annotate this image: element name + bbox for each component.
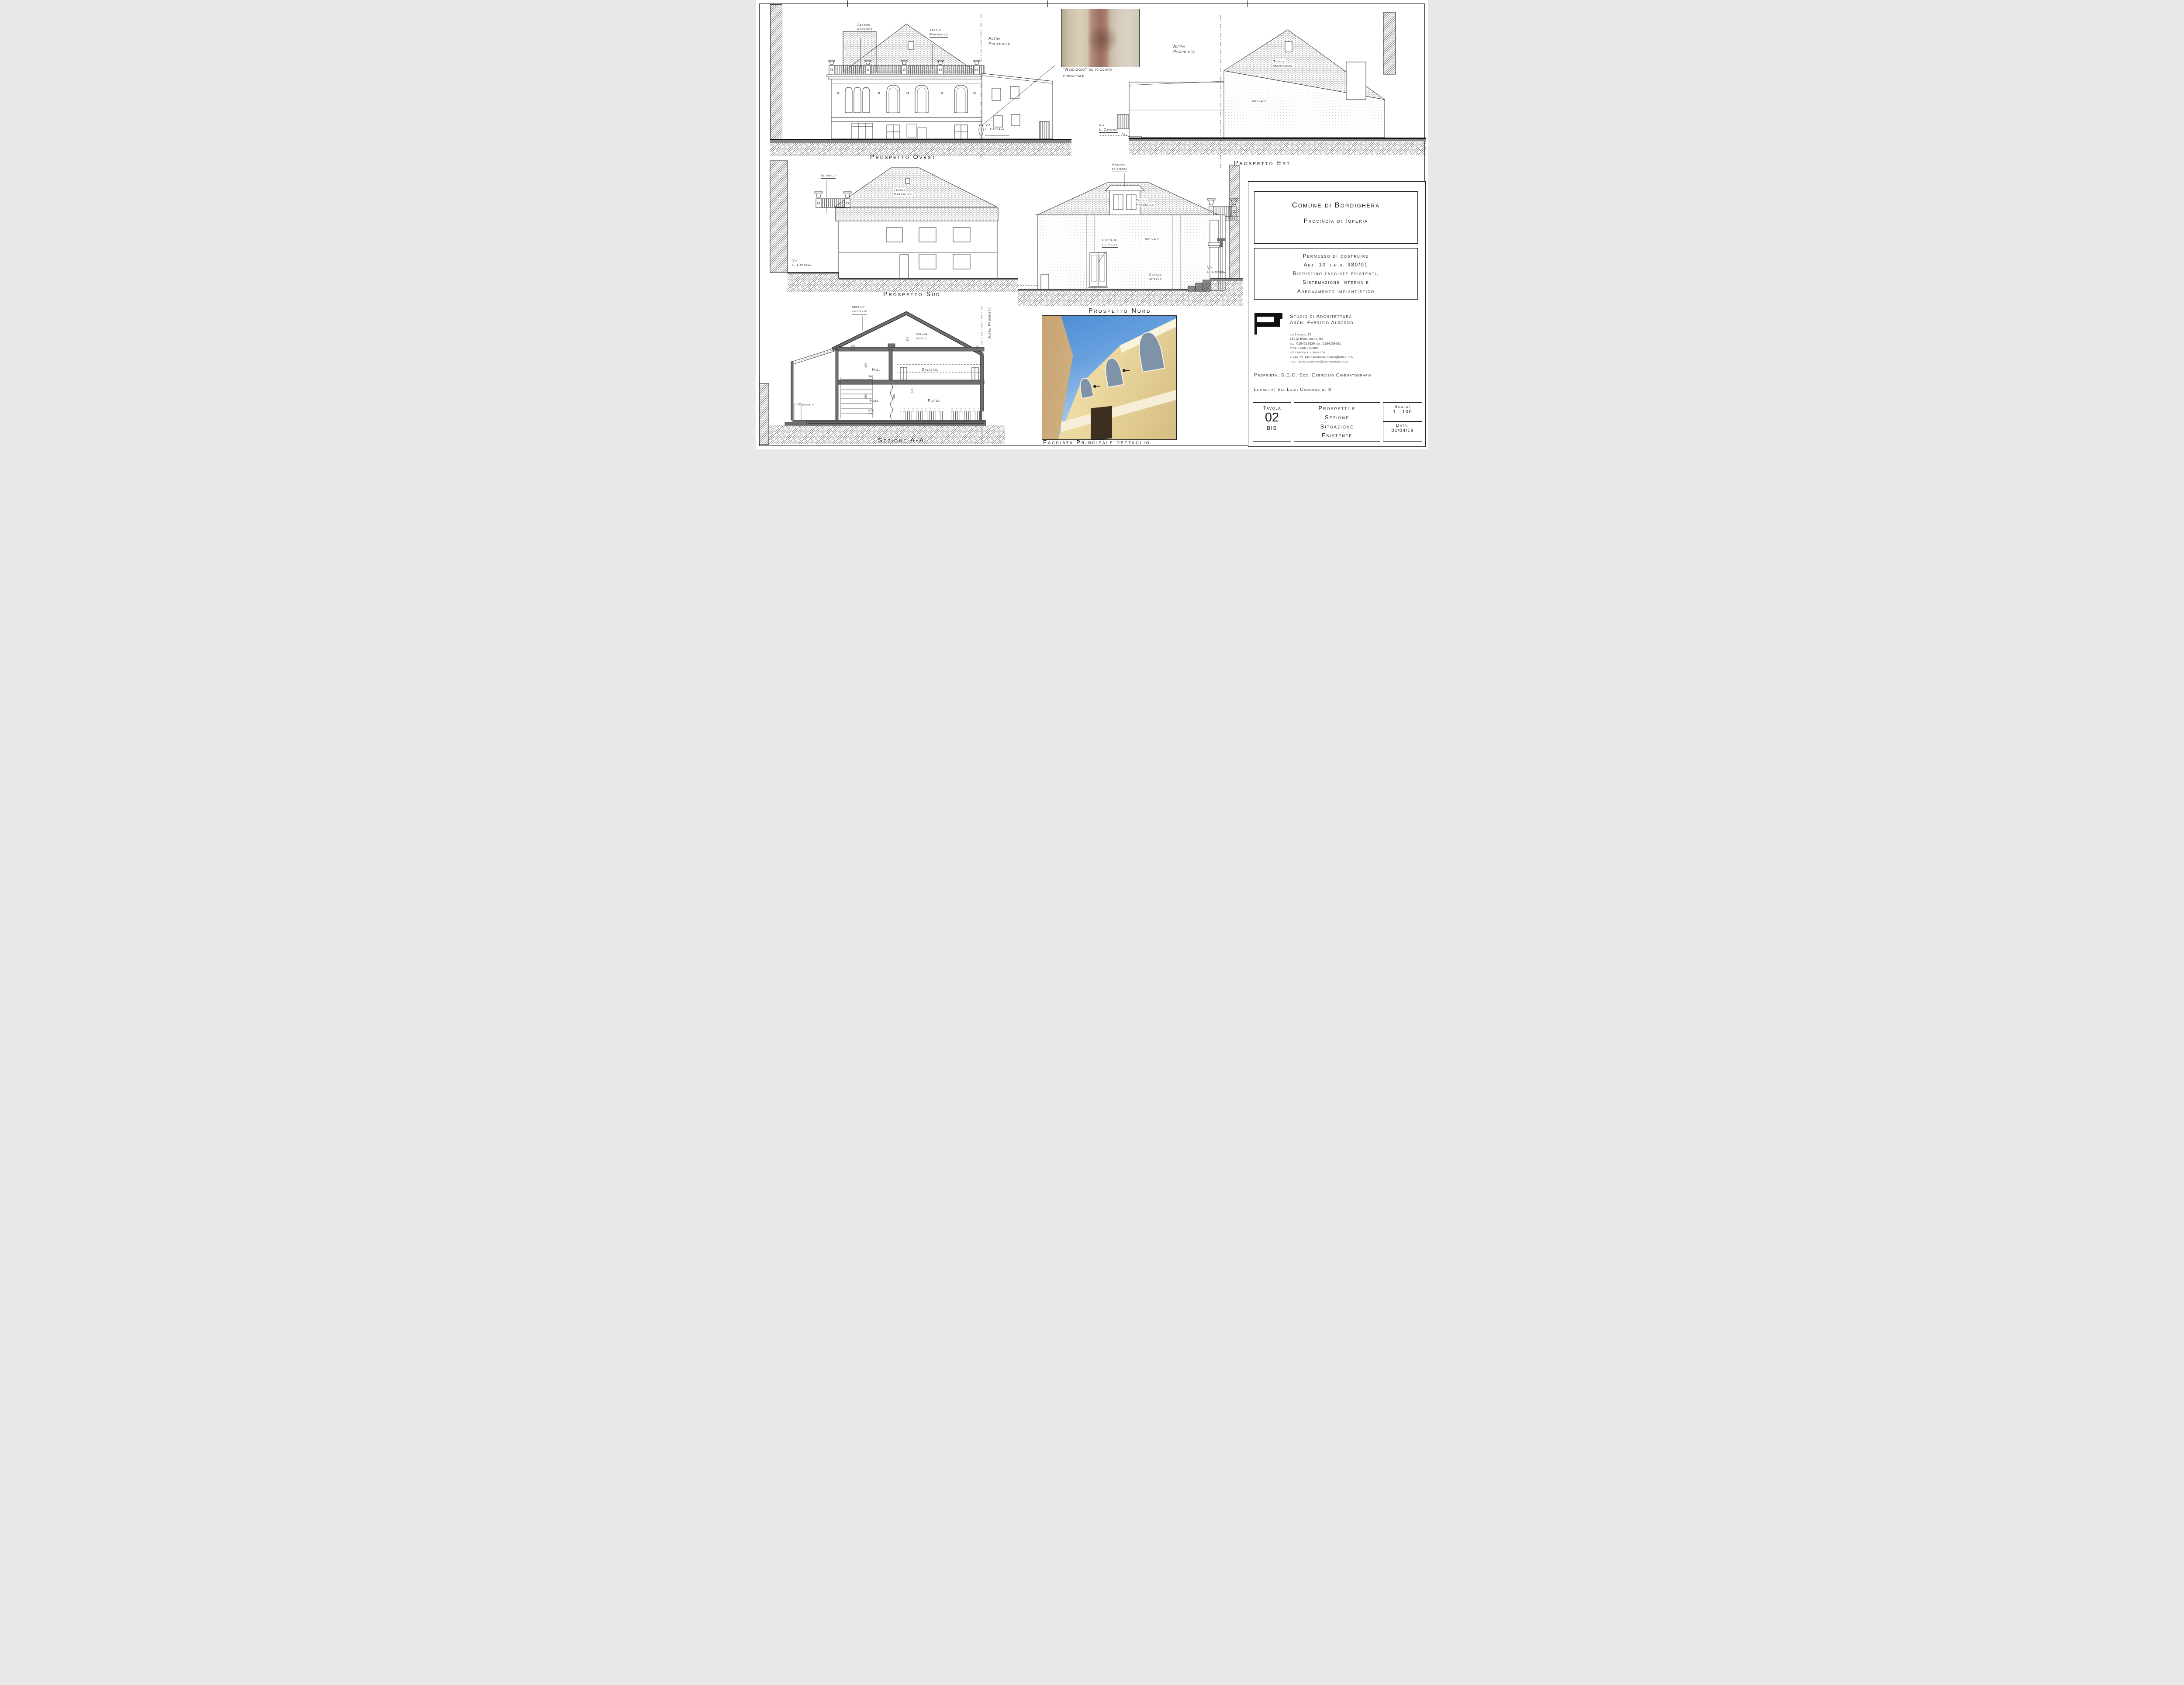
ground-hatch xyxy=(1129,141,1426,155)
basement-door xyxy=(1041,274,1049,291)
permit-line: Art. 10 d.p.r. 380/01 xyxy=(1254,261,1417,269)
title-block: Comune di Bordighera Provincia di Imperi… xyxy=(1248,181,1426,447)
label-intonaco-est: Intonaco xyxy=(1252,99,1266,104)
label-galleria: Galleria xyxy=(922,367,938,372)
scala-value: 1 : 100 xyxy=(1383,409,1422,414)
sezione-aa-drawing xyxy=(758,304,1018,449)
title-block-header: Comune di Bordighera Provincia di Imperi… xyxy=(1254,191,1418,244)
label-tegole-nord: TegoleMarsigliesi xyxy=(1135,198,1155,207)
fold-mark xyxy=(1247,0,1248,7)
neighbour-wall-section xyxy=(771,5,782,142)
label-hall-upper: Hall xyxy=(872,367,881,372)
string-course xyxy=(831,117,982,121)
photo-lamp xyxy=(1123,369,1126,372)
neighbour-wall-section xyxy=(770,161,788,273)
street-line xyxy=(770,139,1071,140)
sheet-title-line: Sezione xyxy=(1294,413,1380,422)
tavola-bis: BIS xyxy=(1253,425,1291,431)
scala-label: Scala: xyxy=(1383,404,1422,409)
prospetto-nord-drawing xyxy=(1016,162,1243,321)
label-cortile: Cortile xyxy=(798,403,815,408)
sheet-title-line: Prospetti e xyxy=(1294,404,1380,413)
label-via-cadorna-est: ViaL. Cadorna xyxy=(1099,123,1118,133)
label-cortile-interno: CortileInterno xyxy=(1149,273,1162,282)
proprieta-line: Proprietà: S.E.C. Soc. Esercizio Cinemat… xyxy=(1254,373,1372,379)
permit-line: Permesso di costruire xyxy=(1254,252,1417,261)
intonaco-texture xyxy=(1037,215,1225,290)
caption-prospetto-est: Prospetto Est xyxy=(1234,160,1291,167)
curtain-line xyxy=(891,384,893,419)
label-uscita-sicurezza: Uscita disicurezza xyxy=(1102,238,1118,248)
provincia-title: Provincia di Imperia xyxy=(1254,218,1417,224)
prospetto-sud-drawing xyxy=(767,157,1018,306)
label-tegole-est: TegoleMarsigliesi xyxy=(1272,59,1293,68)
label-volume-tecnico: Volumetecnico xyxy=(916,332,928,341)
dim-000: 0.00 xyxy=(868,410,874,414)
annex-roof xyxy=(792,346,840,365)
dim-600: 600 xyxy=(912,388,915,393)
permit-line: Ripristino facciate esistenti, xyxy=(1254,269,1417,278)
sheet-title-box: Prospetti e Sezione Situazione Esistente xyxy=(1294,402,1380,442)
tavola-box: Tavola 02 BIS xyxy=(1253,402,1291,442)
permit-line: Adeguamento impiantistico xyxy=(1254,287,1417,296)
cornice xyxy=(827,74,986,77)
drawing-sheet: Abbainoesistente TegoleMarsigliesi Altra… xyxy=(756,0,1428,449)
label-abbaino-sezione: Abbainoesistente xyxy=(852,305,867,314)
wall xyxy=(839,221,997,278)
label-via-cadorna-nord: ViaL. Cadorna xyxy=(1207,266,1226,275)
comune-title: Comune di Bordighera xyxy=(1254,201,1417,210)
roof xyxy=(834,168,997,207)
assaggio-photo xyxy=(1061,9,1140,67)
platea-seats xyxy=(949,408,986,420)
scala-box: Scala: 1 : 100 xyxy=(1383,402,1422,422)
tavola-number: 02 xyxy=(1253,411,1291,425)
platea-seats xyxy=(900,408,943,420)
label-tegole-ovest: TegoleMarsigliesi xyxy=(930,28,948,38)
neighbour-wall-section xyxy=(1383,12,1396,74)
studio-logo-icon xyxy=(1254,313,1282,335)
roof-window xyxy=(905,178,910,183)
label-abbaino-ovest: Abbainoesistente xyxy=(857,23,873,32)
sheet-title-line: Esistente xyxy=(1294,431,1380,440)
label-altra-proprieta-est: AltraProprietà xyxy=(1173,44,1195,55)
street-level xyxy=(1210,279,1243,281)
dim-300: 300 xyxy=(865,363,868,368)
tavola-label: Tavola xyxy=(1253,405,1291,411)
label-altra-proprieta-sezione: Altra Proprietà xyxy=(987,307,992,338)
caption-prospetto-sud: Prospetto Sud xyxy=(883,291,941,298)
dim-690: 690 xyxy=(851,345,856,349)
street-line xyxy=(1129,138,1426,139)
label-platea: Platea xyxy=(928,398,940,403)
label-assaggio: "Assaggio" su facciataprincipale xyxy=(1063,67,1113,79)
label-intonaco-nord: Intonaco xyxy=(1145,237,1159,242)
roof-window xyxy=(1285,41,1292,52)
label-hall-lower: Hall xyxy=(870,398,879,403)
sheet-title-line: Situazione xyxy=(1294,422,1380,432)
annex-building xyxy=(1117,81,1224,138)
label-altra-proprieta-ovest: AltraProprietà xyxy=(988,36,1010,47)
prospetto-est-drawing xyxy=(1096,11,1426,173)
data-value: 01/04/19 xyxy=(1383,428,1422,433)
data-label: Data: xyxy=(1383,423,1422,428)
dim-330: 330 xyxy=(865,394,868,399)
dim-340: 340 xyxy=(893,394,897,399)
neighbour-wall-section xyxy=(1230,165,1239,279)
label-via-cadorna-sud: ViaL. Cadorna xyxy=(792,259,811,268)
dim-50: 50 xyxy=(977,345,980,349)
courtyard-level xyxy=(1018,289,1188,291)
dim-370: 370 xyxy=(907,337,910,342)
galleria-equipment xyxy=(900,367,978,380)
permit-line: Sistemazione interna e xyxy=(1254,278,1417,287)
facciata-photo xyxy=(1042,315,1177,440)
localita-line: Località: Via Luigi Cadorna n. 3 xyxy=(1254,387,1331,393)
roof-window xyxy=(908,41,914,49)
neighbour-wall-section xyxy=(759,383,769,445)
tower-block xyxy=(1346,62,1366,100)
label-via-cadorna-ovest: ViaL. Cadorna xyxy=(985,123,1004,131)
caption-prospetto-nord: Prospetto Nord xyxy=(1089,307,1151,314)
railing xyxy=(1117,114,1129,129)
label-abbaino-nord: Abbainoesistente xyxy=(1112,162,1127,172)
eaves-tile-band xyxy=(836,208,998,221)
prospetto-ovest-drawing xyxy=(770,4,1071,169)
plaster-sample-stain xyxy=(1085,24,1120,55)
dim-360: 360 xyxy=(868,376,873,380)
photo-doorway xyxy=(1091,406,1112,440)
label-tegole-sud: TegoleMarsigliesi xyxy=(893,188,913,197)
permit-box: Permesso di costruire Art. 10 d.p.r. 380… xyxy=(1254,248,1418,300)
caption-sezione-aa: Sezione A-A xyxy=(878,437,925,444)
caption-facciata-principale: Facciata Principale dettaglio xyxy=(1043,439,1151,445)
data-box: Data: 01/04/19 xyxy=(1383,421,1422,442)
studio-name: Studio di ArchitetturaArch. Fabrizio Alb… xyxy=(1290,314,1354,326)
studio-address: via Lagazzi, 10 18012 Bordighera, IM tel… xyxy=(1290,333,1354,365)
label-intonaco-sud: Intonaco xyxy=(821,173,836,179)
urns xyxy=(815,192,851,198)
caption-prospetto-ovest: Prospetto Ovest xyxy=(870,154,936,161)
